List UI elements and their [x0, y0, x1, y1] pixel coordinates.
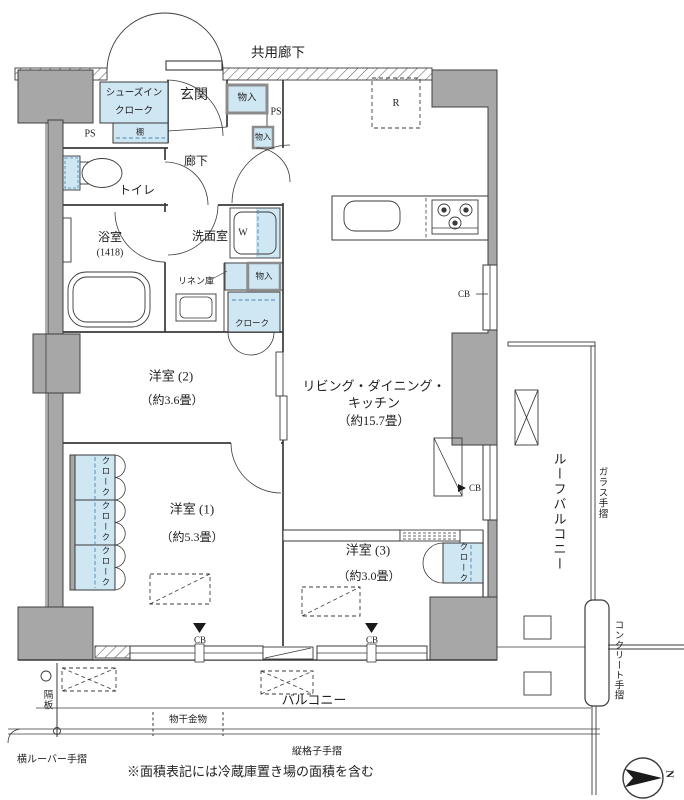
cb-label-window-top: CB [458, 289, 470, 299]
furniture [150, 438, 462, 616]
storage-label-entrance: 物入 [237, 94, 256, 105]
fridge-label: R [392, 98, 399, 110]
toilet-label: トイレ [119, 184, 155, 198]
shoes-closet-label-2: クローク [115, 107, 153, 118]
washer-label: W [238, 227, 247, 239]
roof-balcony-label: ルーフバルコニー [551, 452, 566, 572]
entrance-door [107, 13, 223, 71]
partition-label: 隔板 [41, 690, 52, 711]
area-note: ※面積表記には冷蔵庫置き場の面積を含む [127, 765, 374, 780]
storage-label-linen: 物入 [255, 272, 272, 282]
concrete-rail-label: コンクリート手摺 [612, 620, 623, 700]
shelf-label: 棚 [136, 127, 144, 136]
cb-label-bottom-left: CB [194, 635, 206, 645]
ps-label-right: PS [270, 106, 281, 118]
cb-label-bottom-right: CB [366, 635, 378, 645]
roof-balcony [497, 342, 684, 795]
bath-label: 浴室 [98, 231, 122, 245]
hallway-label: 廊下 [184, 155, 208, 169]
room1-size-label: （約5.3畳） [160, 531, 223, 545]
linen-label: リネン庫 [178, 276, 214, 286]
glass-rail-label: ガラス手摺 [596, 467, 607, 520]
laundry-bracket-label: 物干金物 [169, 716, 207, 727]
room1-name-label: 洋室 (1) [170, 503, 214, 518]
genkan-label: 玄関 [180, 88, 208, 104]
storage-boxes [75, 82, 483, 590]
storage-label-small: 物入 [255, 132, 271, 141]
room2-name-label: 洋室 (2) [149, 370, 193, 385]
room2-size-label: （約3.6畳） [140, 394, 203, 408]
room3-name-label: 洋室 (3) [346, 544, 390, 559]
cb-label-window-mid: CB [469, 483, 481, 493]
ldk-size-label: （約15.7畳） [338, 414, 410, 428]
ps-label-left: PS [84, 128, 95, 140]
ldk-label-2: キッチン [348, 397, 400, 412]
closet-label-room3: クローク [458, 542, 468, 584]
louver-rail-label: 横ルーバー手摺 [17, 754, 87, 766]
toilet-fixture [63, 156, 122, 190]
bath-size-label: (1418) [97, 247, 124, 259]
closet-label-3: クローク [100, 546, 110, 588]
floor-plan-drawing [0, 0, 684, 800]
ldk-label-1: リビング・ダイニング・ [302, 380, 445, 395]
north-label: N [663, 770, 676, 778]
room3-size-label: （約3.0畳） [337, 570, 400, 584]
shoes-closet-label-1: シューズイン [106, 89, 163, 100]
sliding-door-room2 [276, 352, 287, 440]
closet-label-room2: クローク [235, 319, 269, 329]
sliding-door-room3 [400, 530, 460, 541]
lattice-rail-label: 縦格子手摺 [292, 746, 342, 758]
balcony-label: バルコニー [282, 694, 347, 709]
kitchen-counter [332, 196, 488, 240]
stove-burners [438, 204, 472, 229]
closet-label-1: クローク [100, 456, 110, 498]
north-compass [623, 758, 663, 798]
washroom-label: 洗面室 [192, 230, 228, 244]
common-corridor-label: 共用廊下 [251, 45, 305, 61]
floor-plan: 共用廊下 玄関 シューズイン クローク 棚 物入 PS 物入 PS 廊下 トイレ… [0, 0, 684, 800]
closet-label-2: クローク [100, 501, 110, 543]
